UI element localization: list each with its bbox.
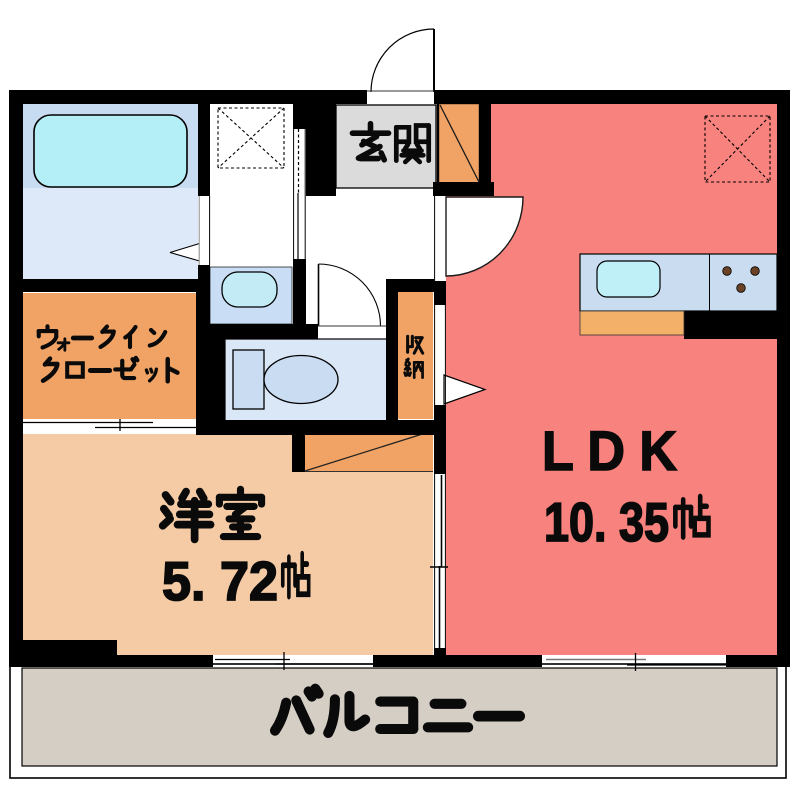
svg-text:5. 72: 5. 72 [162,550,278,612]
svg-text:L D K: L D K [542,419,677,482]
svg-text:10. 35: 10. 35 [544,491,669,553]
